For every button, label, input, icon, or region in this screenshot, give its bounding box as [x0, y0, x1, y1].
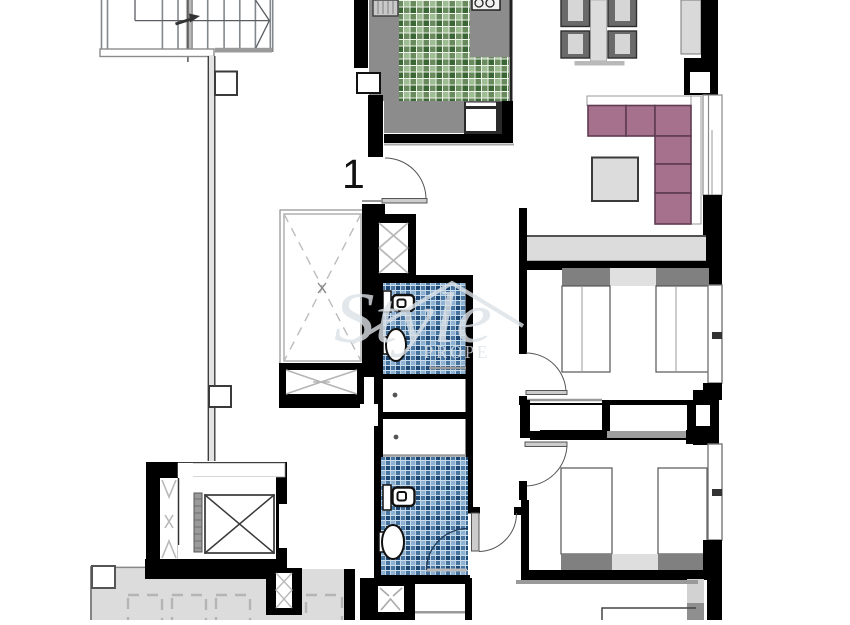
svg-text:PROPE: PROPE: [424, 342, 490, 362]
svg-text:1: 1: [342, 151, 365, 197]
